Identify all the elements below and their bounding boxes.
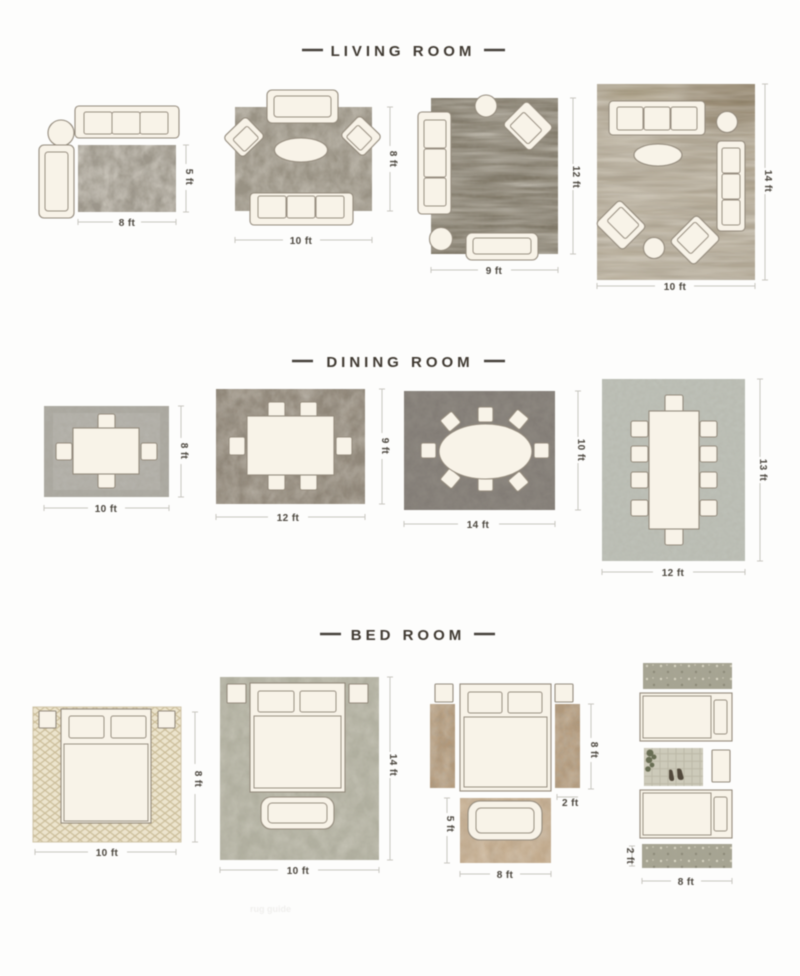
svg-text:10 ft: 10 ft — [96, 848, 119, 859]
svg-text:8 ft: 8 ft — [119, 218, 136, 229]
svg-text:2 ft: 2 ft — [562, 798, 579, 809]
svg-text:LIVING ROOM: LIVING ROOM — [331, 43, 476, 60]
svg-text:DINING ROOM: DINING ROOM — [326, 354, 473, 371]
svg-text:rug guide: rug guide — [250, 904, 291, 914]
svg-text:10 ft: 10 ft — [290, 236, 313, 247]
svg-text:10 ft: 10 ft — [287, 866, 310, 877]
svg-text:2 ft: 2 ft — [624, 848, 635, 865]
svg-text:8 ft: 8 ft — [192, 771, 203, 788]
svg-text:14 ft: 14 ft — [762, 170, 773, 193]
svg-text:12 ft: 12 ft — [277, 513, 300, 524]
svg-text:14 ft: 14 ft — [387, 754, 398, 777]
svg-text:12 ft: 12 ft — [662, 568, 685, 579]
svg-text:9 ft: 9 ft — [379, 438, 390, 455]
svg-text:10 ft: 10 ft — [95, 504, 118, 515]
svg-text:8 ft: 8 ft — [387, 151, 398, 168]
svg-text:8 ft: 8 ft — [588, 742, 599, 759]
svg-text:9 ft: 9 ft — [486, 266, 503, 277]
svg-text:BED ROOM: BED ROOM — [351, 627, 466, 644]
svg-text:10 ft: 10 ft — [664, 282, 687, 293]
svg-text:14 ft: 14 ft — [467, 520, 490, 531]
svg-text:8 ft: 8 ft — [497, 870, 514, 881]
svg-text:8 ft: 8 ft — [678, 877, 695, 888]
svg-text:8 ft: 8 ft — [178, 443, 189, 460]
svg-text:13 ft: 13 ft — [757, 459, 768, 482]
svg-text:5 ft: 5 ft — [444, 816, 455, 833]
svg-text:10 ft: 10 ft — [575, 439, 586, 462]
svg-text:5 ft: 5 ft — [183, 169, 194, 186]
svg-text:12 ft: 12 ft — [570, 166, 581, 189]
